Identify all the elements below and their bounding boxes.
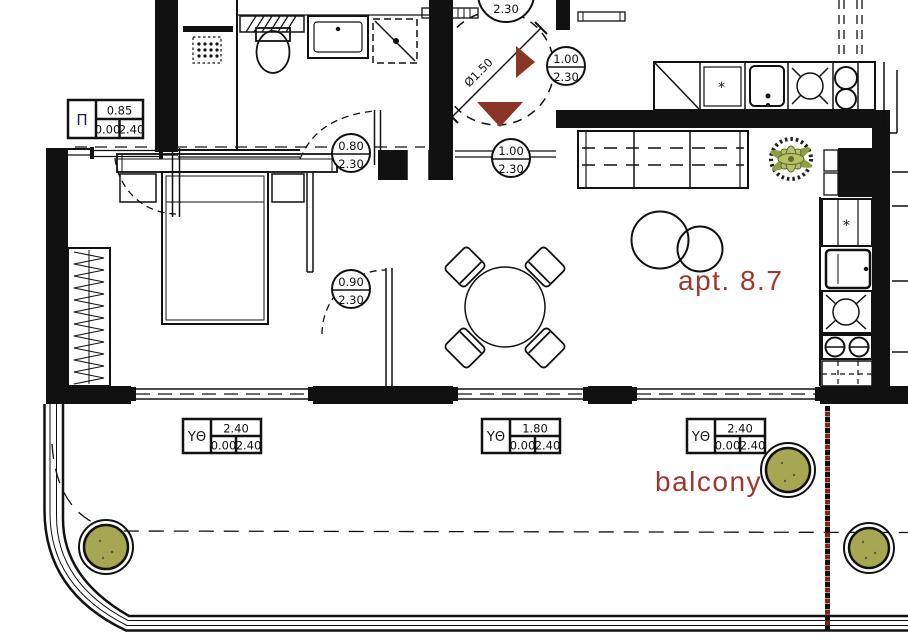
balcony-opening-box-1: ΥΘ 2.40 0.00 2.40 xyxy=(183,419,261,453)
shower xyxy=(373,19,417,63)
chair xyxy=(444,327,486,369)
svg-text:2.40: 2.40 xyxy=(119,123,145,137)
svg-text:2.40: 2.40 xyxy=(740,439,766,453)
svg-text:0.90: 0.90 xyxy=(338,275,364,289)
stove xyxy=(792,68,828,104)
kitchen-column: * xyxy=(820,197,878,386)
svg-text:0.00: 0.00 xyxy=(510,439,536,453)
railing-mid xyxy=(50,404,908,626)
door-label-hall-passage: 1.00 2.30 xyxy=(492,139,530,177)
svg-text:2.30: 2.30 xyxy=(338,293,364,307)
svg-text:0.00: 0.00 xyxy=(95,123,121,137)
bedroom xyxy=(46,147,392,386)
svg-text:2.40: 2.40 xyxy=(535,439,561,453)
entry-turning-circle: Ø1.50 xyxy=(440,11,554,127)
wall-bath-left xyxy=(155,0,178,152)
french-window xyxy=(90,147,163,159)
nightstand-right xyxy=(272,174,304,202)
turning-circle-label: Ø1.50 xyxy=(461,55,495,89)
floor-plan-drawing: Ø1.50 xyxy=(0,0,908,644)
pendant-lamp xyxy=(632,212,723,272)
sofa xyxy=(578,131,748,188)
door-swing-arc xyxy=(115,158,176,214)
wall-left xyxy=(46,150,68,404)
window-schedule-box: Π 0.85 0.00 2.40 xyxy=(68,100,144,138)
double-burner xyxy=(835,67,857,109)
entry-bench xyxy=(578,12,625,21)
duct-dots xyxy=(197,42,218,57)
window xyxy=(131,387,313,401)
door-label-top: 2.30 xyxy=(478,0,534,22)
svg-text:1.00: 1.00 xyxy=(553,52,579,66)
double-sink-unit xyxy=(822,335,872,359)
base-cabinet xyxy=(822,361,872,386)
svg-text:1.00: 1.00 xyxy=(498,144,524,158)
svg-text:2.30: 2.30 xyxy=(493,2,519,16)
svg-text:2.30: 2.30 xyxy=(553,70,579,84)
svg-text:2.30: 2.30 xyxy=(338,157,364,171)
fridge-unit: * xyxy=(822,199,872,246)
wall-entry-right-stub xyxy=(556,0,570,30)
balcony-windows xyxy=(131,387,820,401)
chair xyxy=(524,246,566,288)
wall-cabinet xyxy=(824,173,838,195)
railing-outer xyxy=(45,404,908,631)
wall-bottom-4 xyxy=(820,386,908,404)
balcony-opening-box-2: ΥΘ 1.80 0.00 2.40 xyxy=(482,419,560,453)
floor-plan: Ø1.50 xyxy=(0,0,908,644)
balcony: balcony xyxy=(45,404,908,631)
hall xyxy=(75,147,556,157)
chair xyxy=(444,246,486,288)
nightstand-left xyxy=(120,174,156,202)
bedroom-entry-door xyxy=(115,148,180,217)
counter-diagonal xyxy=(654,62,700,110)
svg-text:2.30: 2.30 xyxy=(498,162,524,176)
bed xyxy=(162,172,268,324)
svg-text:1.80: 1.80 xyxy=(522,422,548,436)
dining-table-set xyxy=(444,246,566,369)
window xyxy=(453,387,588,401)
kitchen-sink xyxy=(750,66,784,107)
shaft-grille xyxy=(183,26,233,32)
svg-text:0.00: 0.00 xyxy=(715,439,741,453)
svg-text:0.85: 0.85 xyxy=(107,104,133,118)
planter xyxy=(79,520,133,574)
svg-text:2.40: 2.40 xyxy=(236,439,262,453)
dining-table xyxy=(465,267,545,347)
planter xyxy=(761,443,815,497)
chair xyxy=(524,327,566,369)
svg-text:ΥΘ: ΥΘ xyxy=(691,430,710,445)
svg-text:ΥΘ: ΥΘ xyxy=(187,430,206,445)
svg-text:2.40: 2.40 xyxy=(727,422,753,436)
balcony-opening-box-3: ΥΘ 2.40 0.00 2.40 xyxy=(687,419,765,453)
svg-text:2.40: 2.40 xyxy=(223,422,249,436)
door-label-bedroom: 0.90 2.30 xyxy=(332,270,370,308)
stove-unit xyxy=(822,291,872,333)
toilet xyxy=(256,28,290,73)
wardrobe xyxy=(68,248,110,386)
wall-bottom-2 xyxy=(313,386,453,404)
door-label-bathroom: 0.80 2.30 xyxy=(332,134,370,172)
wall-living-top xyxy=(556,110,875,128)
svg-text:Π: Π xyxy=(76,111,87,129)
wall-bath-corner xyxy=(378,150,407,180)
planter xyxy=(844,523,894,573)
fridge-symbol: * xyxy=(718,80,725,96)
wall-entry-left xyxy=(429,0,453,180)
wall-right xyxy=(872,110,890,386)
svg-text:0.80: 0.80 xyxy=(338,139,364,153)
wall-cabinet xyxy=(824,150,838,171)
fridge-symbol: * xyxy=(843,218,850,234)
wall-bottom-3 xyxy=(588,386,632,404)
svg-text:ΥΘ: ΥΘ xyxy=(486,430,505,445)
svg-text:0.00: 0.00 xyxy=(211,439,237,453)
entry-arrow-right-icon xyxy=(516,46,535,78)
window xyxy=(632,387,820,401)
balcony-label: balcony xyxy=(655,466,762,497)
apartment-label: apt. 8.7 xyxy=(678,265,783,296)
wc-cistern-hatch xyxy=(240,16,304,32)
door-label-entry-right: 1.00 2.30 xyxy=(547,47,585,85)
sink xyxy=(308,16,368,58)
oven-unit xyxy=(826,250,878,288)
plant-icon xyxy=(769,139,814,179)
wall-bottom-1 xyxy=(46,386,131,404)
